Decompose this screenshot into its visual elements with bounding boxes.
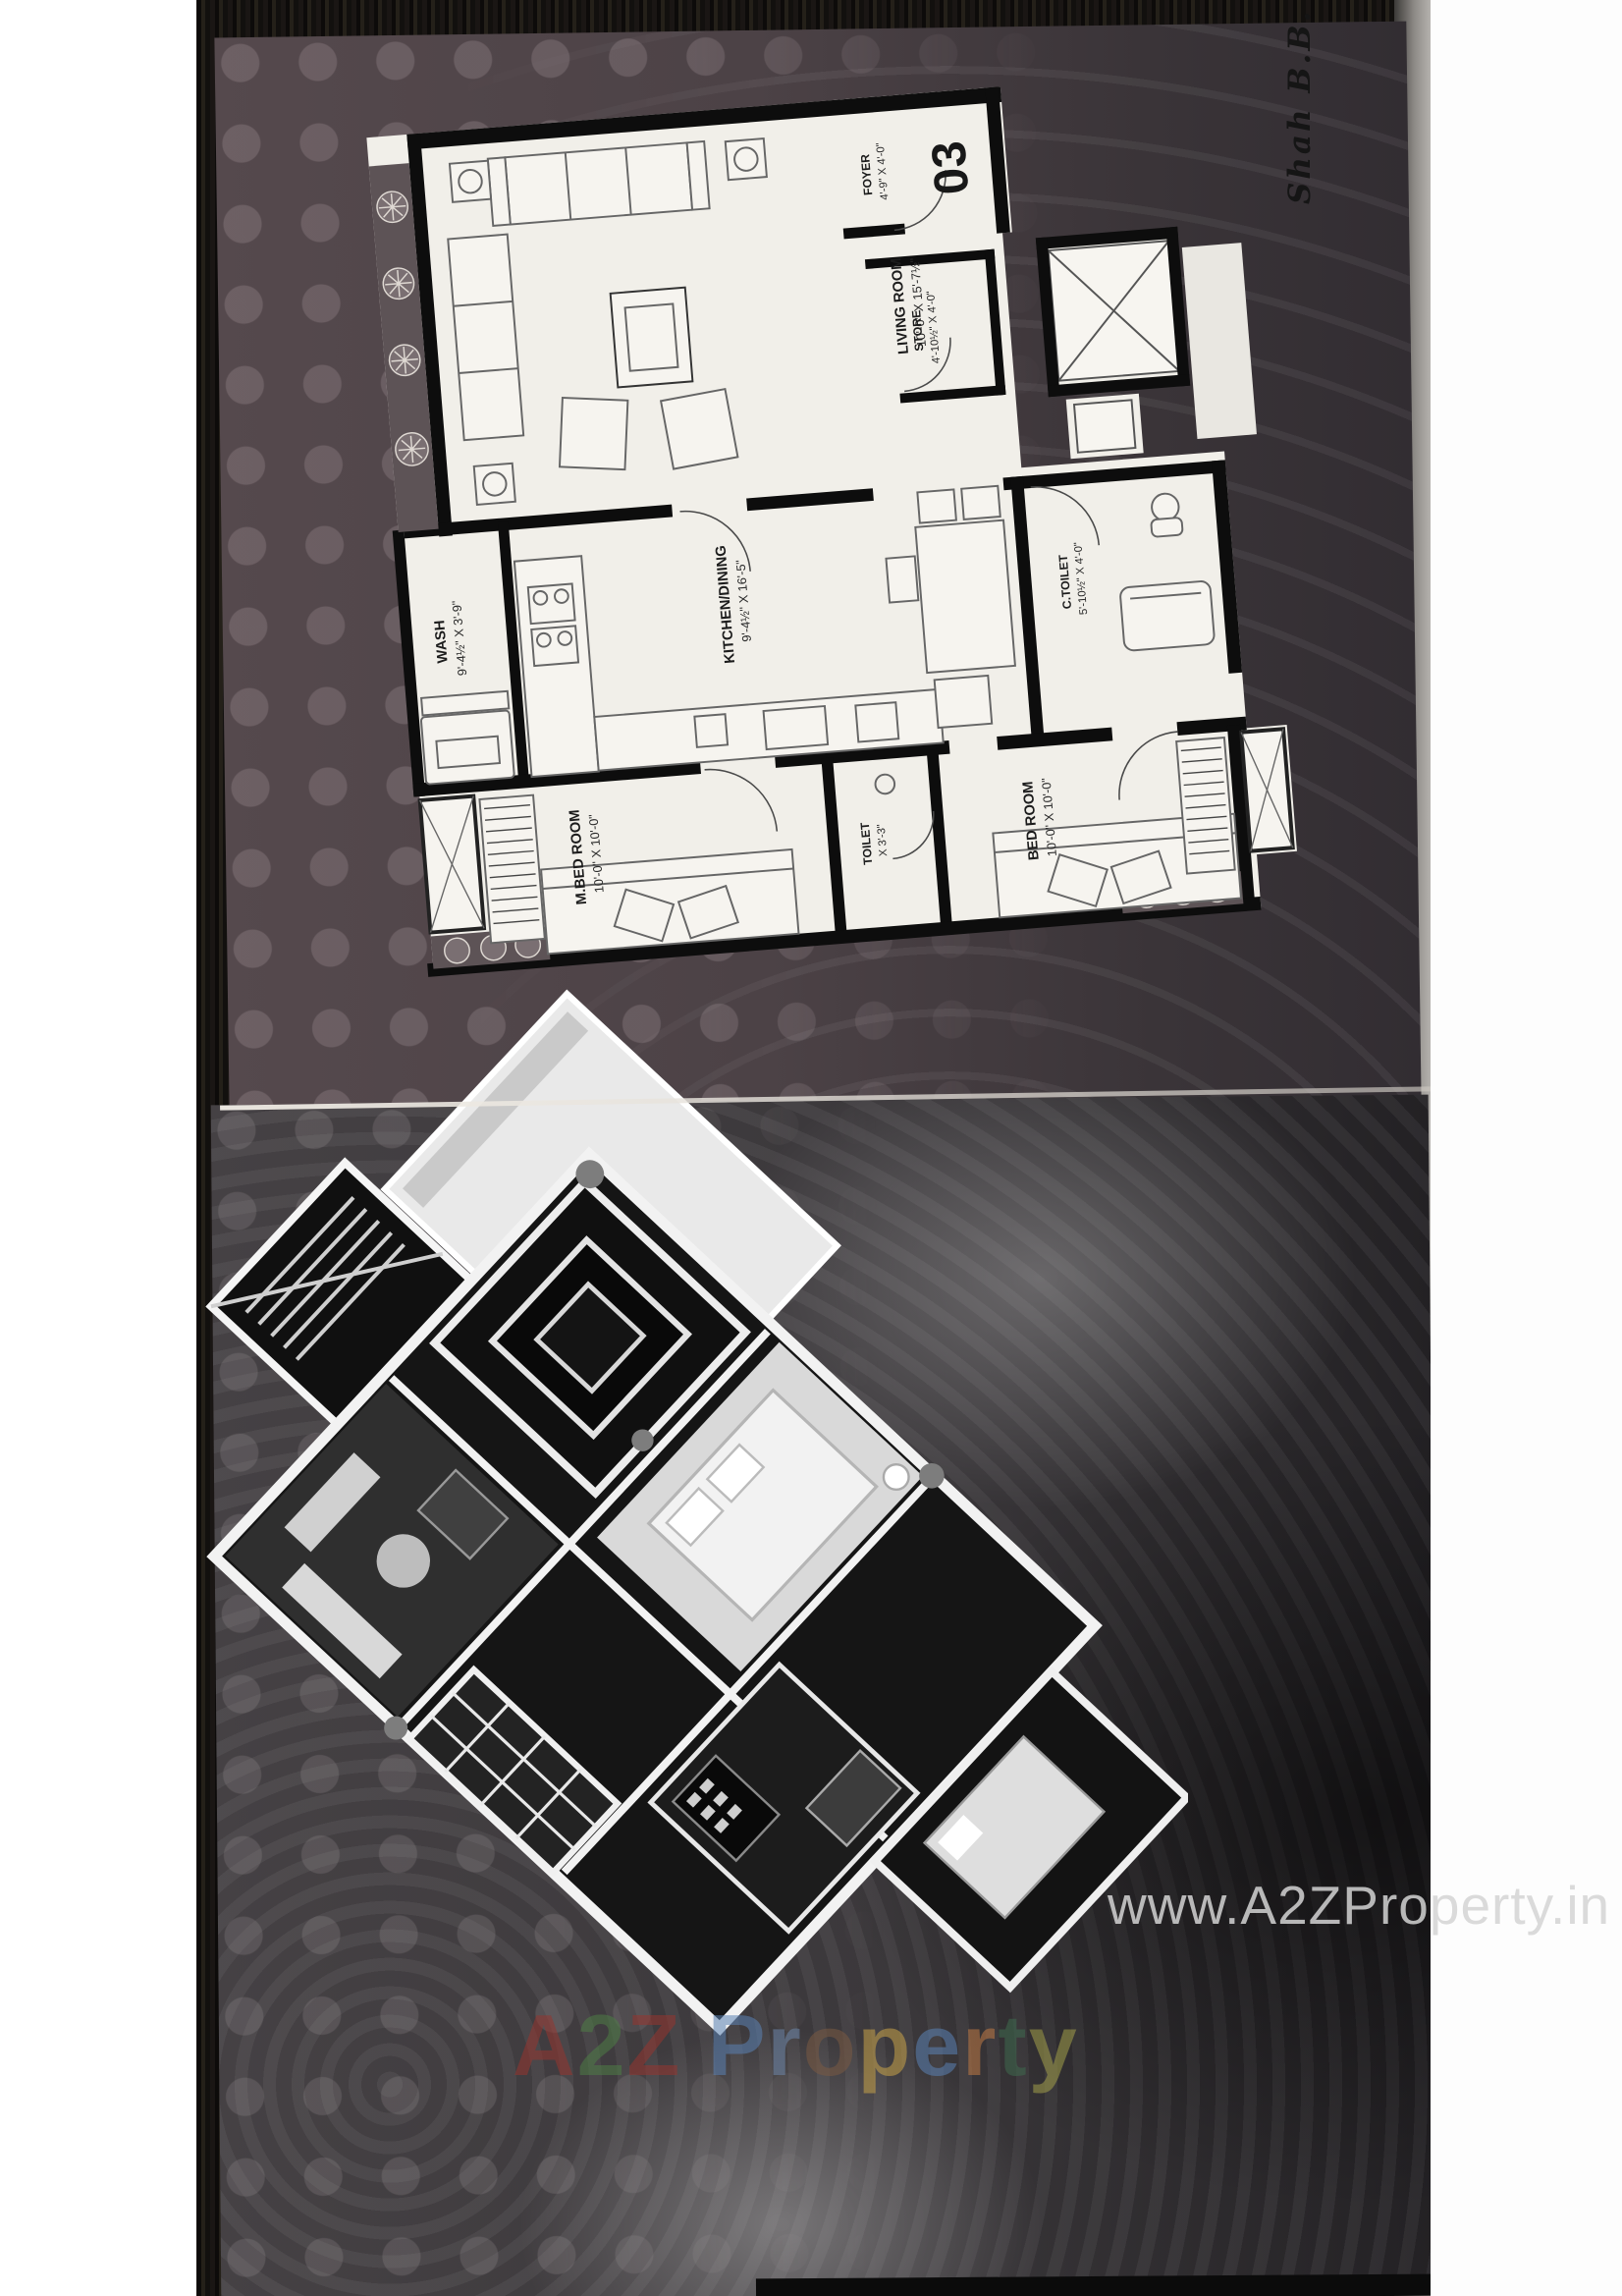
brand-letter: o [803, 1996, 858, 2094]
brochure-photo: LIVING ROOM 10'-0" X 15'-7½" FOYER 4'-9"… [0, 0, 1622, 2296]
unit-number: 03 [922, 139, 979, 197]
brand-letter: r [962, 1996, 998, 2094]
scan-margin-left [0, 0, 196, 2296]
handwritten-note: Shah B.B. [1282, 9, 1318, 204]
brand-letter: t [998, 1996, 1028, 2094]
floor-plan: LIVING ROOM 10'-0" X 15'-7½" FOYER 4'-9"… [357, 48, 1308, 984]
scan-margin-right [1431, 0, 1622, 2296]
watermark-url: www.A2ZProperty.in [1108, 1874, 1610, 1937]
brand-letter: P [708, 1996, 768, 2094]
brand-letter: r [767, 1996, 802, 2094]
photo-bottom-shadow [756, 2274, 1433, 2296]
brand-letter: Z [627, 1996, 682, 2094]
watermark-brand: A2Z Property [513, 1995, 1079, 2096]
brand-letter: 2 [577, 1996, 627, 2094]
brand-letter [681, 1996, 707, 2094]
brand-letter: p [857, 1996, 912, 2094]
brand-letter: y [1029, 1996, 1079, 2094]
brand-letter: e [912, 1996, 962, 2094]
brand-letter: A [513, 1996, 577, 2094]
wash-area-furniture [419, 691, 514, 785]
